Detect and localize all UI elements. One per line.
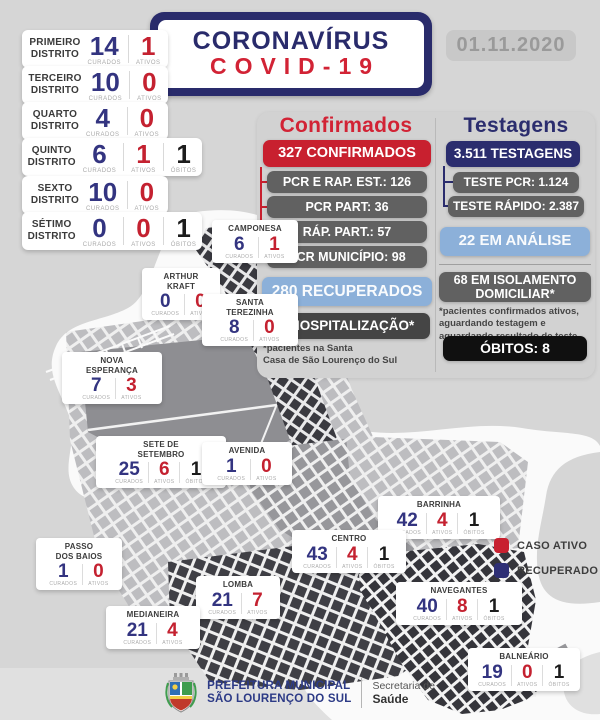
ativos-label: ATIVOS bbox=[88, 582, 108, 587]
curados-count: 6 bbox=[92, 141, 106, 167]
divider bbox=[163, 217, 164, 245]
curados-label: CURADOS bbox=[220, 338, 248, 343]
district-name: QUARTO DISTRITO bbox=[31, 109, 79, 133]
curados-label: CURADOS bbox=[82, 396, 110, 401]
ativos-count: 8 bbox=[457, 597, 468, 616]
neighborhood-name: ARTHUR KRAFT bbox=[164, 272, 199, 291]
confirmados-title: Confirmados bbox=[257, 114, 435, 138]
divider bbox=[457, 513, 458, 534]
ativos-label: ATIVOS bbox=[162, 641, 182, 646]
curados-label: CURADOS bbox=[225, 255, 253, 260]
date-badge: 01.11.2020 bbox=[446, 30, 576, 61]
legend-item-recuperado: RECUPERADO bbox=[494, 563, 598, 578]
curados-label: CURADOS bbox=[83, 168, 117, 174]
district-card-terceiro: TERCEIRO DISTRITO 10CURADOS 0ATIVOS bbox=[22, 66, 168, 104]
legend-label: RECUPERADO bbox=[517, 565, 598, 577]
district-card-sexto: SEXTO DISTRITO 10CURADOS 0ATIVOS bbox=[22, 176, 168, 214]
divider bbox=[426, 513, 427, 534]
divider bbox=[241, 593, 242, 614]
ativos-count: 4 bbox=[167, 621, 178, 640]
ativos-count: 0 bbox=[93, 562, 104, 581]
divider bbox=[336, 547, 337, 568]
obitos-count: 1 bbox=[191, 460, 202, 479]
neighborhood-name: CAMPONESA bbox=[228, 224, 282, 234]
panel-divider bbox=[435, 118, 436, 372]
district-name: TERCEIRO DISTRITO bbox=[28, 73, 81, 97]
ativos-label: ATIVOS bbox=[137, 96, 162, 102]
curados-count: 1 bbox=[58, 562, 69, 581]
recuperado-swatch bbox=[494, 563, 509, 578]
section-divider bbox=[439, 264, 591, 265]
ativos-label: ATIVOS bbox=[121, 396, 141, 401]
divider bbox=[148, 462, 149, 483]
obitos-count: 1 bbox=[489, 597, 500, 616]
curados-count: 0 bbox=[92, 215, 106, 241]
curados-count: 43 bbox=[307, 545, 328, 564]
divider bbox=[477, 599, 478, 620]
divider bbox=[156, 623, 157, 644]
legend: CASO ATIVO RECUPERADO bbox=[494, 538, 598, 578]
curados-count: 6 bbox=[234, 235, 245, 254]
curados-label: CURADOS bbox=[303, 565, 331, 570]
legend-label: CASO ATIVO bbox=[517, 540, 587, 552]
infographic: CORONAVÍRUS COVID-19 01.11.2020 PRIMEIRO… bbox=[0, 0, 600, 720]
divider bbox=[127, 107, 128, 135]
divider bbox=[115, 378, 116, 399]
curados-label: CURADOS bbox=[86, 206, 120, 212]
neighborhood-card-medianeira: MEDIANEIRA 21CURADOS 4ATIVOS bbox=[106, 606, 200, 649]
ativos-label: ATIVOS bbox=[432, 531, 452, 536]
ativos-count: 6 bbox=[159, 460, 170, 479]
neighborhood-card-avenida: AVENIDA 1CURADOS 0ATIVOS bbox=[202, 442, 292, 485]
confirmados-note: *pacientes na Santa Casa de São Lourenço… bbox=[263, 343, 433, 368]
divider bbox=[129, 71, 130, 99]
ativos-label: ATIVOS bbox=[154, 480, 174, 485]
divider bbox=[184, 294, 185, 315]
ativos-label: ATIVOS bbox=[131, 242, 156, 248]
divider bbox=[179, 462, 180, 483]
curados-count: 14 bbox=[90, 33, 119, 59]
neighborhood-card-santa-terezinha: SANTA TEREZINHA 8CURADOS 0ATIVOS bbox=[202, 294, 298, 346]
divider bbox=[123, 217, 124, 245]
curados-count: 21 bbox=[127, 621, 148, 640]
ativos-count: 1 bbox=[269, 235, 280, 254]
ativos-count: 3 bbox=[126, 376, 137, 395]
curados-label: CURADOS bbox=[217, 477, 245, 482]
neighborhood-card-passo-dos-baios: PASSO DOS BAIOS 1CURADOS 0ATIVOS bbox=[36, 538, 122, 590]
isolamento-box: 68 EM ISOLAMENTO DOMICILIAR* bbox=[439, 272, 591, 302]
divider bbox=[82, 564, 83, 585]
obitos-count: 1 bbox=[176, 141, 190, 167]
obitos-label: ÓBITOS bbox=[373, 565, 394, 570]
curados-label: CURADOS bbox=[86, 132, 120, 138]
neighborhood-name: CENTRO bbox=[332, 534, 367, 544]
district-card-quarto: QUARTO DISTRITO 4CURADOS 0ATIVOS bbox=[22, 102, 168, 140]
testagens-title: Testagens bbox=[437, 114, 595, 138]
ativos-label: ATIVOS bbox=[135, 132, 160, 138]
ativos-label: ATIVOS bbox=[264, 255, 284, 260]
bracket-tick bbox=[260, 206, 267, 208]
ativos-count: 0 bbox=[264, 318, 275, 337]
curados-label: CURADOS bbox=[123, 641, 151, 646]
legend-item-caso-ativo: CASO ATIVO bbox=[494, 538, 598, 553]
divider bbox=[127, 181, 128, 209]
curados-count: 21 bbox=[212, 591, 233, 610]
neighborhood-name: SANTA TEREZINHA bbox=[226, 298, 274, 317]
divider bbox=[367, 547, 368, 568]
neighborhood-name: AVENIDA bbox=[229, 446, 266, 456]
ativos-count: 4 bbox=[347, 545, 358, 564]
ativos-label: ATIVOS bbox=[136, 60, 161, 66]
curados-count: 1 bbox=[226, 457, 237, 476]
obitos-label: ÓBITOS bbox=[171, 242, 197, 248]
curados-label: CURADOS bbox=[83, 242, 117, 248]
obitos-count: 1 bbox=[469, 511, 480, 530]
page-title: CORONAVÍRUS bbox=[193, 28, 390, 54]
obitos-box: ÓBITOS: 8 bbox=[443, 336, 587, 361]
obitos-count: 1 bbox=[176, 215, 190, 241]
curados-label: CURADOS bbox=[208, 611, 236, 616]
confirmados-breakdown-item: PCR PART: 36 bbox=[267, 196, 427, 218]
district-name: QUINTO DISTRITO bbox=[28, 145, 76, 169]
curados-label: CURADOS bbox=[115, 480, 143, 485]
ativos-count: 4 bbox=[437, 511, 448, 530]
district-card-setimo: SÉTIMO DISTRITO 0CURADOS 0ATIVOS 1ÓBITOS bbox=[22, 212, 202, 250]
ativos-label: ATIVOS bbox=[452, 617, 472, 622]
neighborhood-name: SETE DE SETEMBRO bbox=[138, 440, 185, 459]
curados-label: CURADOS bbox=[413, 617, 441, 622]
ativos-label: ATIVOS bbox=[135, 206, 160, 212]
divider bbox=[123, 143, 124, 171]
divider bbox=[128, 35, 129, 63]
curados-count: 42 bbox=[397, 511, 418, 530]
neighborhood-card-camponesa: CAMPONESA 6CURADOS 1ATIVOS bbox=[212, 220, 298, 263]
ativos-label: ATIVOS bbox=[247, 611, 267, 616]
neighborhood-name: NOVA ESPERANÇA bbox=[86, 356, 138, 375]
divider bbox=[446, 599, 447, 620]
district-card-primeiro: PRIMEIRO DISTRITO 14CURADOS 1ATIVOS bbox=[22, 30, 168, 68]
divider bbox=[163, 143, 164, 171]
curados-count: 8 bbox=[229, 318, 240, 337]
neighborhood-card-centro: CENTRO 43CURADOS 4ATIVOS 1ÓBITOS bbox=[292, 530, 406, 573]
dept-line2: Saúde bbox=[372, 692, 434, 706]
ativos-count: 0 bbox=[142, 69, 156, 95]
caso-ativo-swatch bbox=[494, 538, 509, 553]
bracket-tick bbox=[443, 181, 453, 183]
testagens-breakdown-item: TESTE PCR: 1.124 bbox=[453, 172, 579, 193]
footer: PREFEITURA MUNICIPAL SÃO LOURENÇO DO SUL… bbox=[0, 670, 600, 716]
neighborhood-name: NAVEGANTES bbox=[431, 586, 488, 596]
org-line2: SÃO LOURENÇO DO SUL bbox=[207, 693, 351, 706]
ativos-count: 1 bbox=[136, 141, 150, 167]
analise-box: 22 EM ANÁLISE bbox=[440, 227, 590, 256]
district-name: SEXTO DISTRITO bbox=[31, 183, 79, 207]
district-card-quinto: QUINTO DISTRITO 6CURADOS 1ATIVOS 1ÓBITOS bbox=[22, 138, 202, 176]
obitos-count: 1 bbox=[379, 545, 390, 564]
neighborhood-name: LOMBA bbox=[223, 580, 253, 590]
confirmados-total: 327 CONFIRMADOS bbox=[263, 140, 431, 167]
org-name: PREFEITURA MUNICIPAL SÃO LOURENÇO DO SUL bbox=[207, 680, 351, 706]
curados-label: CURADOS bbox=[87, 60, 121, 66]
ativos-count: 7 bbox=[252, 591, 263, 610]
curados-count: 10 bbox=[91, 69, 120, 95]
ativos-label: ATIVOS bbox=[342, 565, 362, 570]
ativos-count: 0 bbox=[140, 179, 154, 205]
divider bbox=[250, 459, 251, 480]
department: Secretaria de Saúde bbox=[372, 680, 434, 707]
obitos-label: ÓBITOS bbox=[483, 617, 504, 622]
page-subtitle: COVID-19 bbox=[210, 54, 380, 79]
curados-count: 7 bbox=[91, 376, 102, 395]
obitos-label: ÓBITOS bbox=[171, 168, 197, 174]
title-badge-inner: CORONAVÍRUS COVID-19 bbox=[158, 20, 424, 88]
ativos-label: ATIVOS bbox=[256, 477, 276, 482]
bracket-line bbox=[443, 166, 445, 207]
org-line1: PREFEITURA MUNICIPAL bbox=[207, 680, 351, 693]
divider bbox=[361, 678, 362, 708]
curados-count: 25 bbox=[119, 460, 140, 479]
ativos-count: 0 bbox=[136, 215, 150, 241]
neighborhood-name: BALNEÁRIO bbox=[499, 652, 548, 662]
ativos-count: 0 bbox=[140, 105, 154, 131]
confirmados-breakdown-item: PCR E RAP. EST.: 126 bbox=[267, 171, 427, 193]
ativos-count: 0 bbox=[261, 457, 272, 476]
curados-label: CURADOS bbox=[151, 312, 179, 317]
divider bbox=[253, 320, 254, 341]
district-name: PRIMEIRO DISTRITO bbox=[29, 37, 80, 61]
curados-count: 0 bbox=[160, 292, 171, 311]
neighborhood-card-nova-esperanca: NOVA ESPERANÇA 7CURADOS 3ATIVOS bbox=[62, 352, 162, 404]
curados-label: CURADOS bbox=[49, 582, 77, 587]
city-crest-icon bbox=[165, 673, 197, 713]
district-name: SÉTIMO DISTRITO bbox=[28, 219, 76, 243]
neighborhood-name: PASSO DOS BAIOS bbox=[56, 542, 103, 561]
ativos-count: 1 bbox=[141, 33, 155, 59]
testagens-total: 3.511 TESTAGENS bbox=[446, 141, 580, 167]
neighborhood-card-navegantes: NAVEGANTES 40CURADOS 8ATIVOS 1ÓBITOS bbox=[396, 582, 522, 625]
neighborhood-name: BARRINHA bbox=[417, 500, 461, 510]
curados-label: CURADOS bbox=[89, 96, 123, 102]
curados-count: 40 bbox=[417, 597, 438, 616]
neighborhood-name: MEDIANEIRA bbox=[127, 610, 180, 620]
curados-count: 10 bbox=[88, 179, 117, 205]
testagens-breakdown-item: TESTE RÁPIDO: 2.387 bbox=[448, 196, 584, 217]
neighborhood-card-lomba: LOMBA 21CURADOS 7ATIVOS bbox=[196, 576, 280, 619]
divider bbox=[258, 237, 259, 258]
bracket-tick bbox=[260, 181, 267, 183]
dept-line1: Secretaria de bbox=[372, 680, 434, 693]
obitos-label: ÓBITOS bbox=[463, 531, 484, 536]
title-badge: CORONAVÍRUS COVID-19 bbox=[150, 12, 432, 96]
curados-count: 4 bbox=[96, 105, 110, 131]
ativos-label: ATIVOS bbox=[131, 168, 156, 174]
ativos-label: ATIVOS bbox=[259, 338, 279, 343]
